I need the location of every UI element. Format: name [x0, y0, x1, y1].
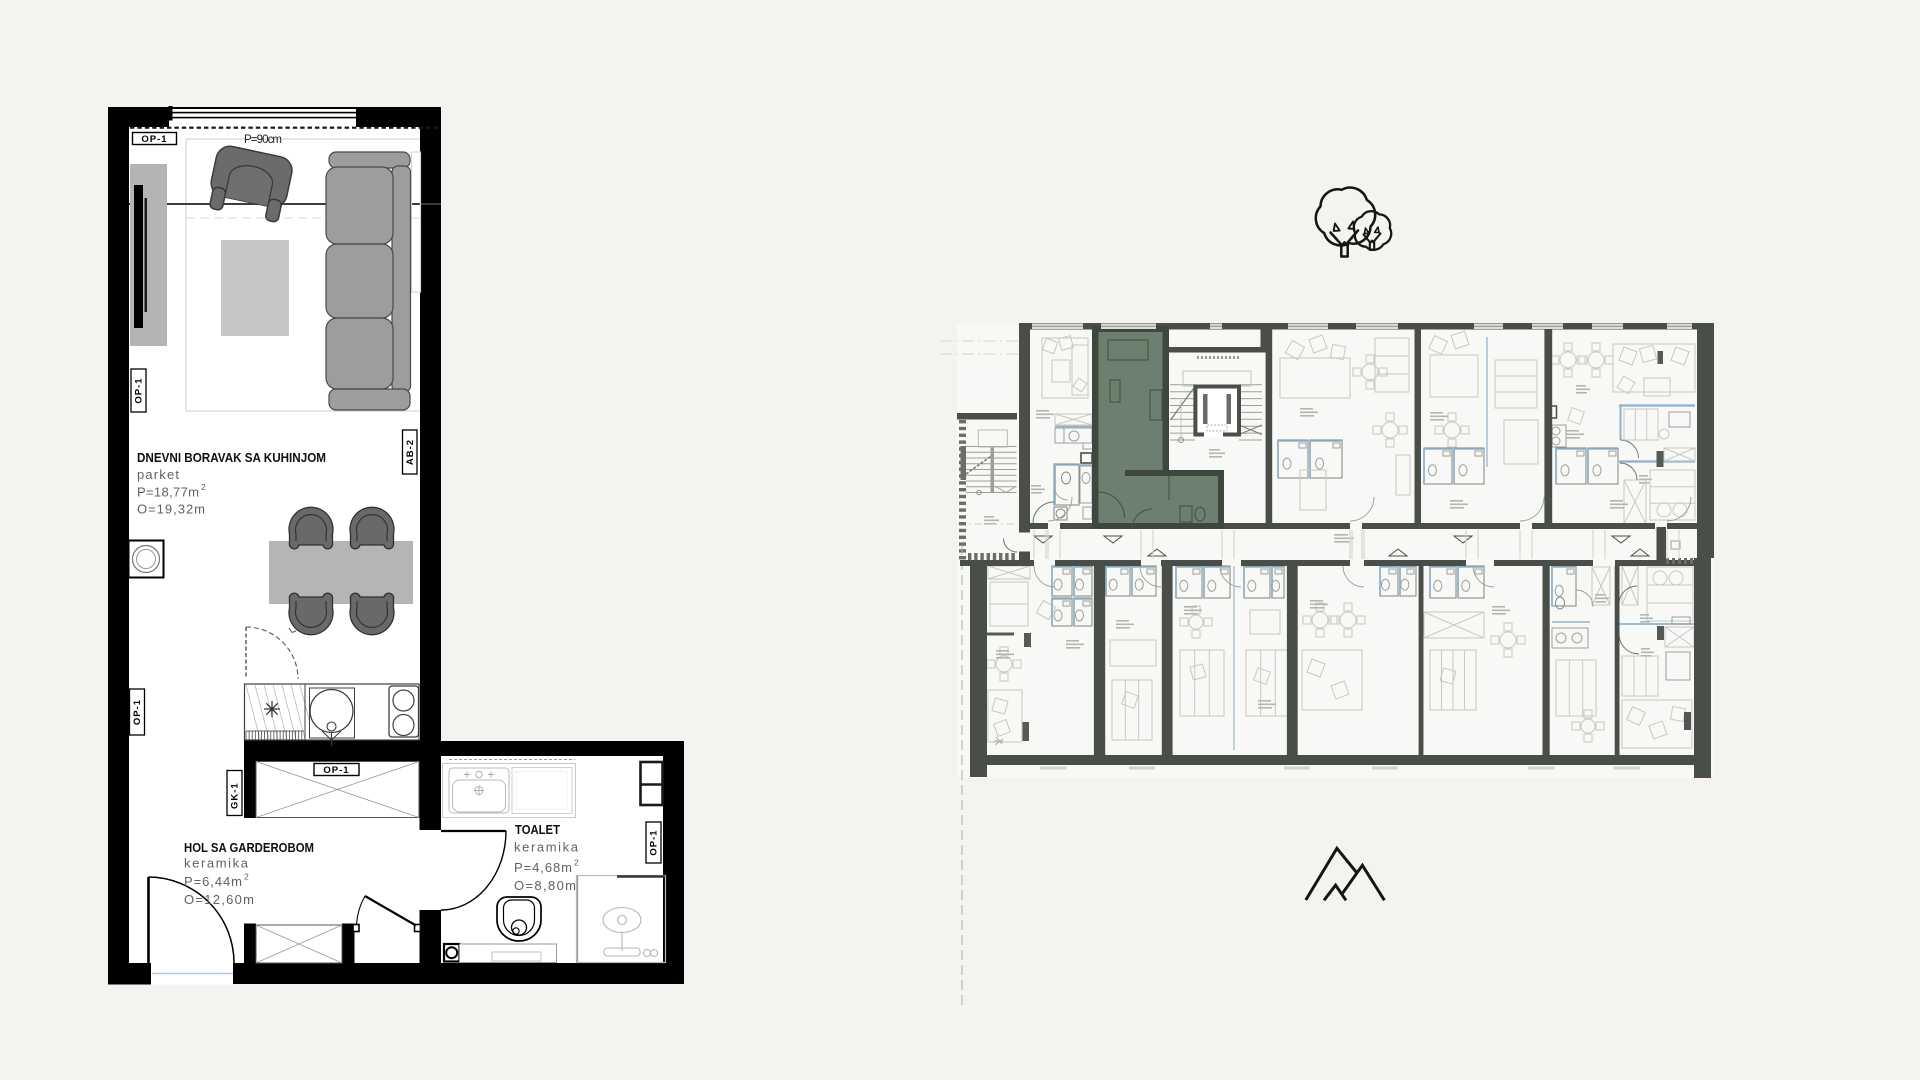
svg-text:O=12,60m: O=12,60m [184, 892, 254, 907]
svg-text:OP-1: OP-1 [141, 134, 167, 145]
svg-text:P=90cm: P=90cm [244, 134, 282, 146]
svg-text:OP-1: OP-1 [134, 377, 145, 403]
svg-text:DNEVNI BORAVAK SA KUHINJOM: DNEVNI BORAVAK SA KUHINJOM [137, 451, 326, 465]
svg-text:keramika: keramika [514, 840, 579, 855]
svg-text:2: 2 [244, 872, 249, 882]
svg-text:2: 2 [574, 858, 579, 868]
svg-text:P=4,68m: P=4,68m [514, 860, 572, 875]
svg-text:AB-2: AB-2 [405, 439, 416, 465]
svg-text:OP-1: OP-1 [132, 699, 143, 725]
svg-text:O=8,80m: O=8,80m [514, 878, 576, 893]
svg-text:P=6,44m: P=6,44m [184, 874, 242, 889]
svg-text:keramika: keramika [184, 856, 249, 871]
svg-text:GK-1: GK-1 [230, 782, 241, 809]
svg-text:OP-1: OP-1 [649, 829, 660, 855]
svg-text:2: 2 [201, 482, 206, 492]
svg-text:P=18,77m: P=18,77m [137, 485, 199, 500]
svg-text:TOALET: TOALET [515, 823, 560, 837]
svg-text:HOL SA GARDEROBOM: HOL SA GARDEROBOM [184, 841, 314, 855]
svg-text:O=19,32m: O=19,32m [137, 502, 205, 517]
svg-text:OP-1: OP-1 [323, 765, 349, 776]
